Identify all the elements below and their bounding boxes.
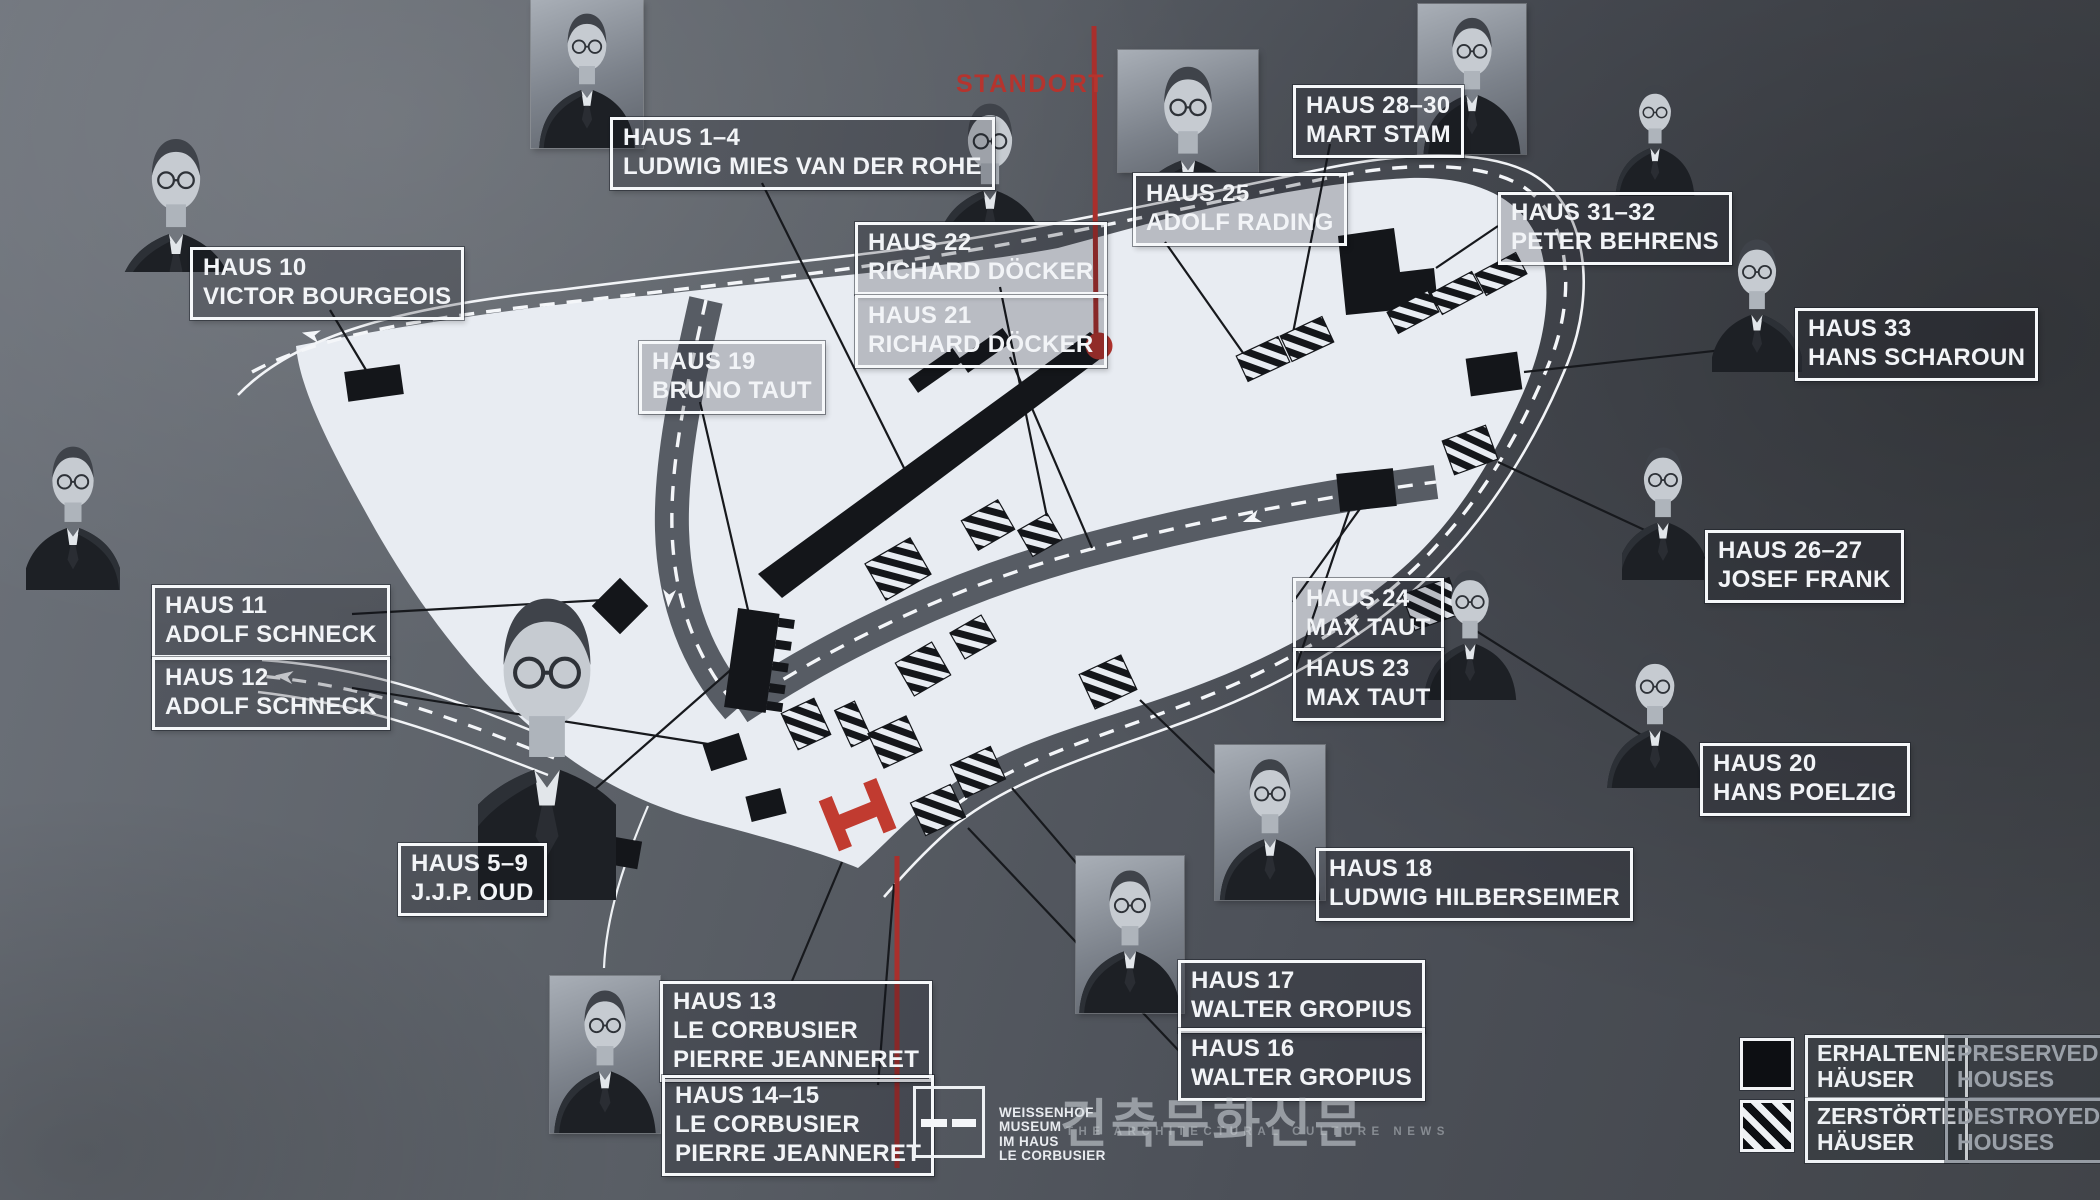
portrait-adolf-rading (1118, 50, 1258, 172)
portrait-hans-poelzig (1606, 640, 1704, 788)
standort-label: STANDORT (956, 70, 1105, 99)
label-haus-1-4: HAUS 1–4 LUDWIG MIES VAN DER ROHE (610, 117, 995, 190)
weissenhof-museum-facade-icon (913, 1086, 985, 1158)
portrait-le-corbusier (550, 976, 660, 1133)
label-haus-26-27: HAUS 26–27 JOSEF FRANK (1705, 530, 1904, 603)
destroyed-swatch-icon (1740, 1100, 1794, 1152)
portrait-josef-frank (1622, 434, 1704, 580)
label-haus-10: HAUS 10 VICTOR BOURGEOIS (190, 247, 464, 320)
label-haus-23: HAUS 23 MAX TAUT (1293, 648, 1444, 721)
label-haus-12: HAUS 12 ADOLF SCHNECK (152, 657, 390, 730)
label-haus-11: HAUS 11 ADOLF SCHNECK (152, 585, 390, 658)
portrait-adolf-schneck (26, 432, 120, 590)
legend-zerstoerte-haeuser: ZERSTÖRTE HÄUSER (1805, 1098, 1968, 1163)
label-haus-33: HAUS 33 HANS SCHAROUN (1795, 308, 2038, 381)
portrait-walter-gropius (1076, 856, 1184, 1013)
preserved-swatch-icon (1740, 1038, 1794, 1090)
label-haus-21: HAUS 21 RICHARD DÖCKER (855, 295, 1107, 368)
legend-preserved-houses: PRESERVED HOUSES (1945, 1035, 2100, 1100)
building-haus-33 (1466, 352, 1523, 397)
label-haus-13: HAUS 13 LE CORBUSIER PIERRE JEANNERET (660, 981, 932, 1082)
watermark-korean: 건축문화신문 (1060, 1082, 1365, 1157)
portrait-ludwig-hilberseimer (1215, 745, 1325, 900)
label-haus-20: HAUS 20 HANS POELZIG (1700, 743, 1910, 816)
legend-destroyed-houses: DESTROYED HOUSES (1945, 1098, 2100, 1163)
label-haus-22: HAUS 22 RICHARD DÖCKER (855, 222, 1107, 295)
watermark-english: THE ARCHITECTURAL CULTURE NEWS (1066, 1126, 1450, 1138)
label-haus-28-30: HAUS 28–30 MART STAM (1293, 85, 1464, 158)
label-haus-24: HAUS 24 MAX TAUT (1293, 578, 1444, 651)
legend-erhaltene-haeuser: ERHALTENE HÄUSER (1805, 1035, 1968, 1100)
label-haus-17: HAUS 17 WALTER GROPIUS (1178, 960, 1425, 1033)
portrait-peter-behrens (1612, 74, 1698, 196)
label-haus-19: HAUS 19 BRUNO TAUT (639, 341, 825, 414)
label-haus-18: HAUS 18 LUDWIG HILBERSEIMER (1316, 848, 1633, 921)
label-haus-31-32: HAUS 31–32 PETER BEHRENS (1498, 192, 1732, 265)
label-haus-25: HAUS 25 ADOLF RADING (1133, 173, 1347, 246)
label-haus-5-9: HAUS 5–9 J.J.P. OUD (398, 843, 547, 916)
label-haus-14-15: HAUS 14–15 LE CORBUSIER PIERRE JEANNERET (662, 1075, 934, 1176)
weissenhof-site-map-board: STANDORT HAUS 1–4 LUDWIG MIES VAN DER RO… (0, 0, 2100, 1200)
building-haus-24 (1336, 468, 1397, 512)
